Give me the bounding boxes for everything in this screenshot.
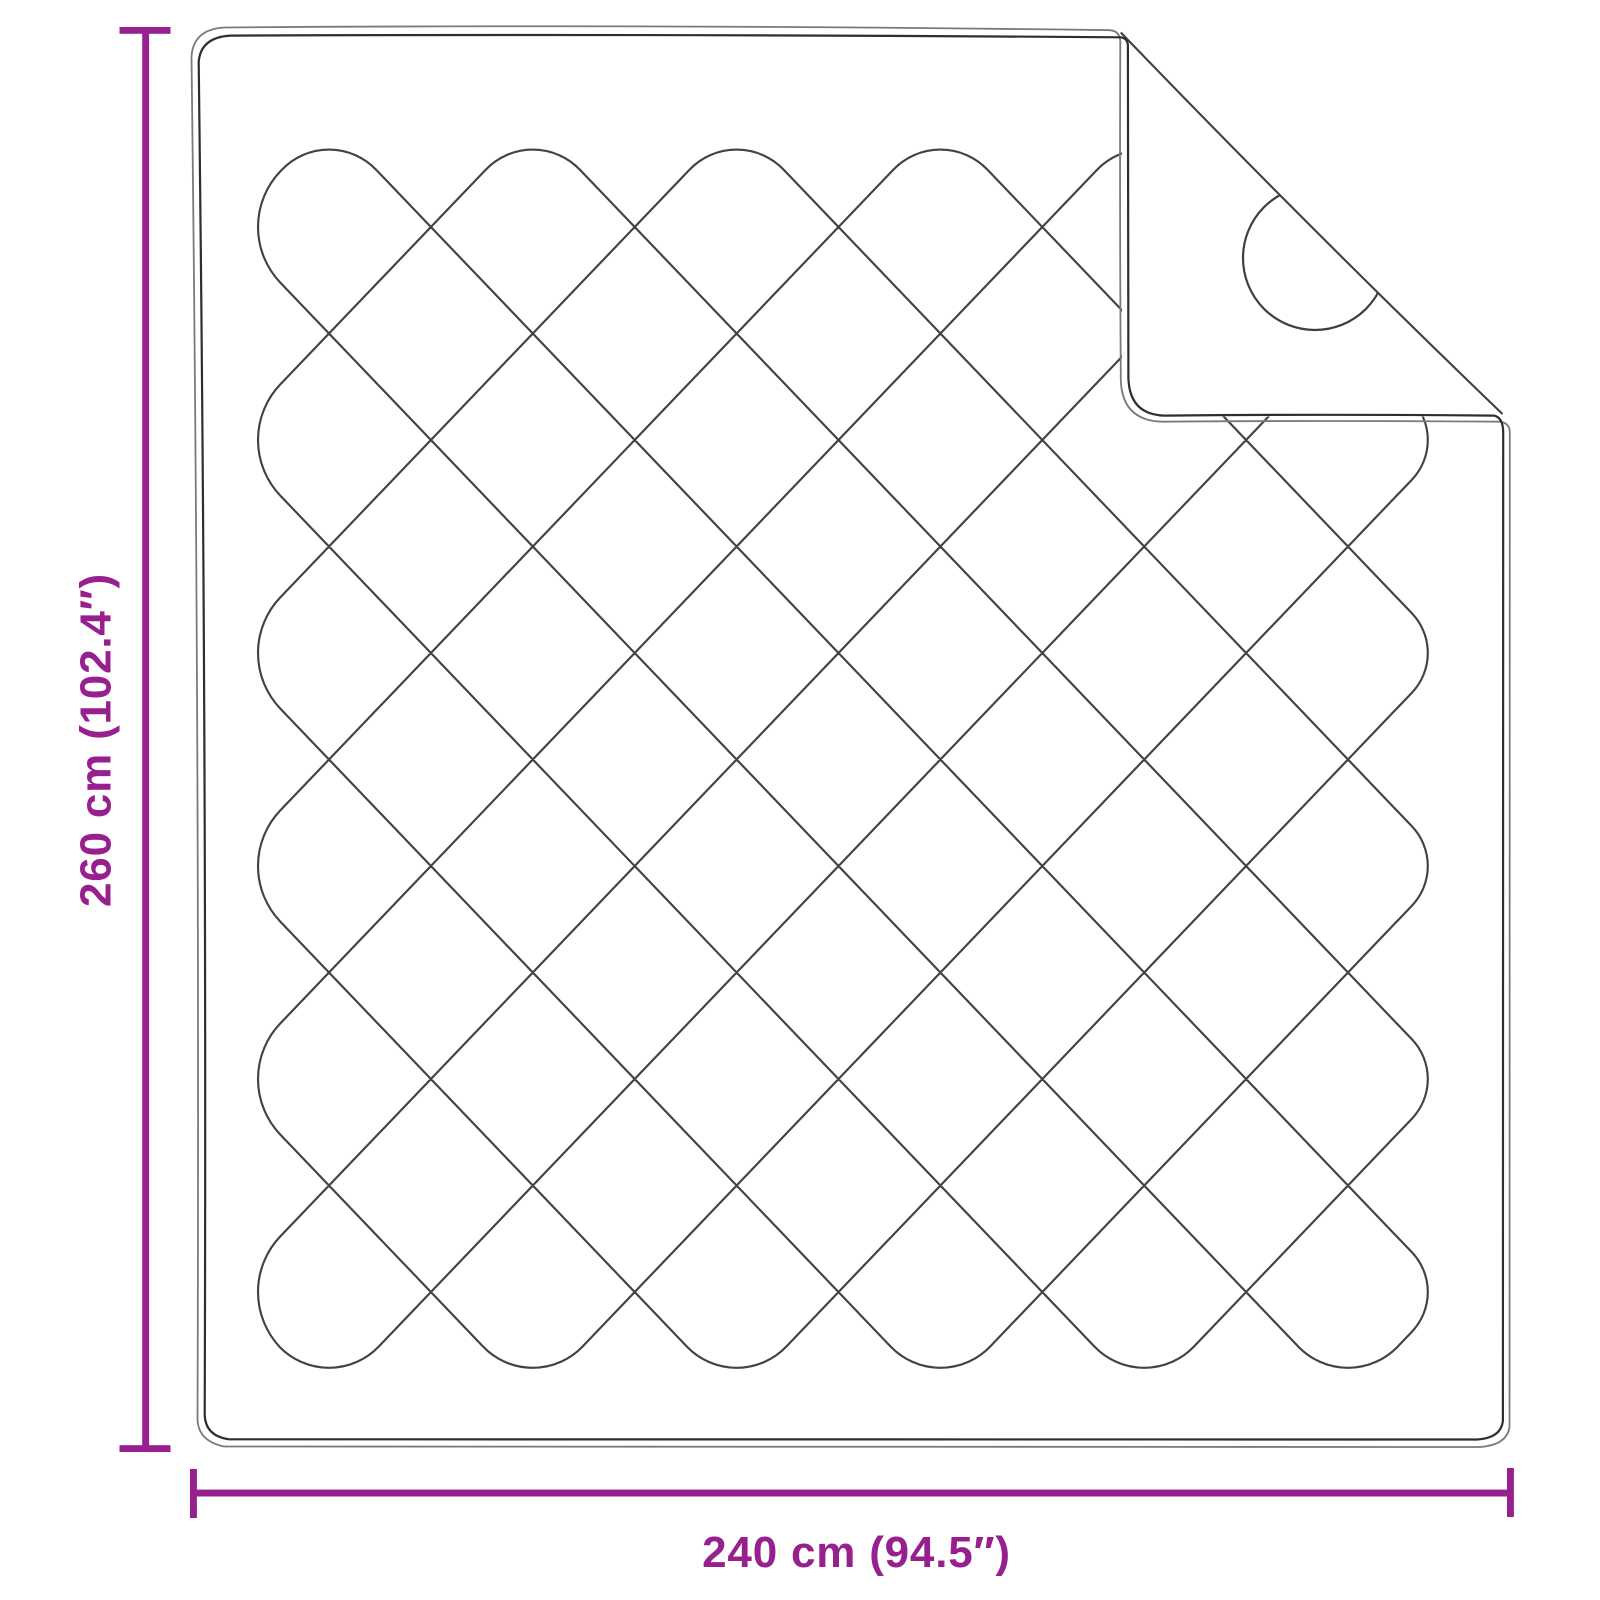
svg-text:240 cm (94.5″): 240 cm (94.5″)	[702, 1528, 1011, 1577]
svg-text:260 cm (102.4″): 260 cm (102.4″)	[72, 573, 121, 907]
